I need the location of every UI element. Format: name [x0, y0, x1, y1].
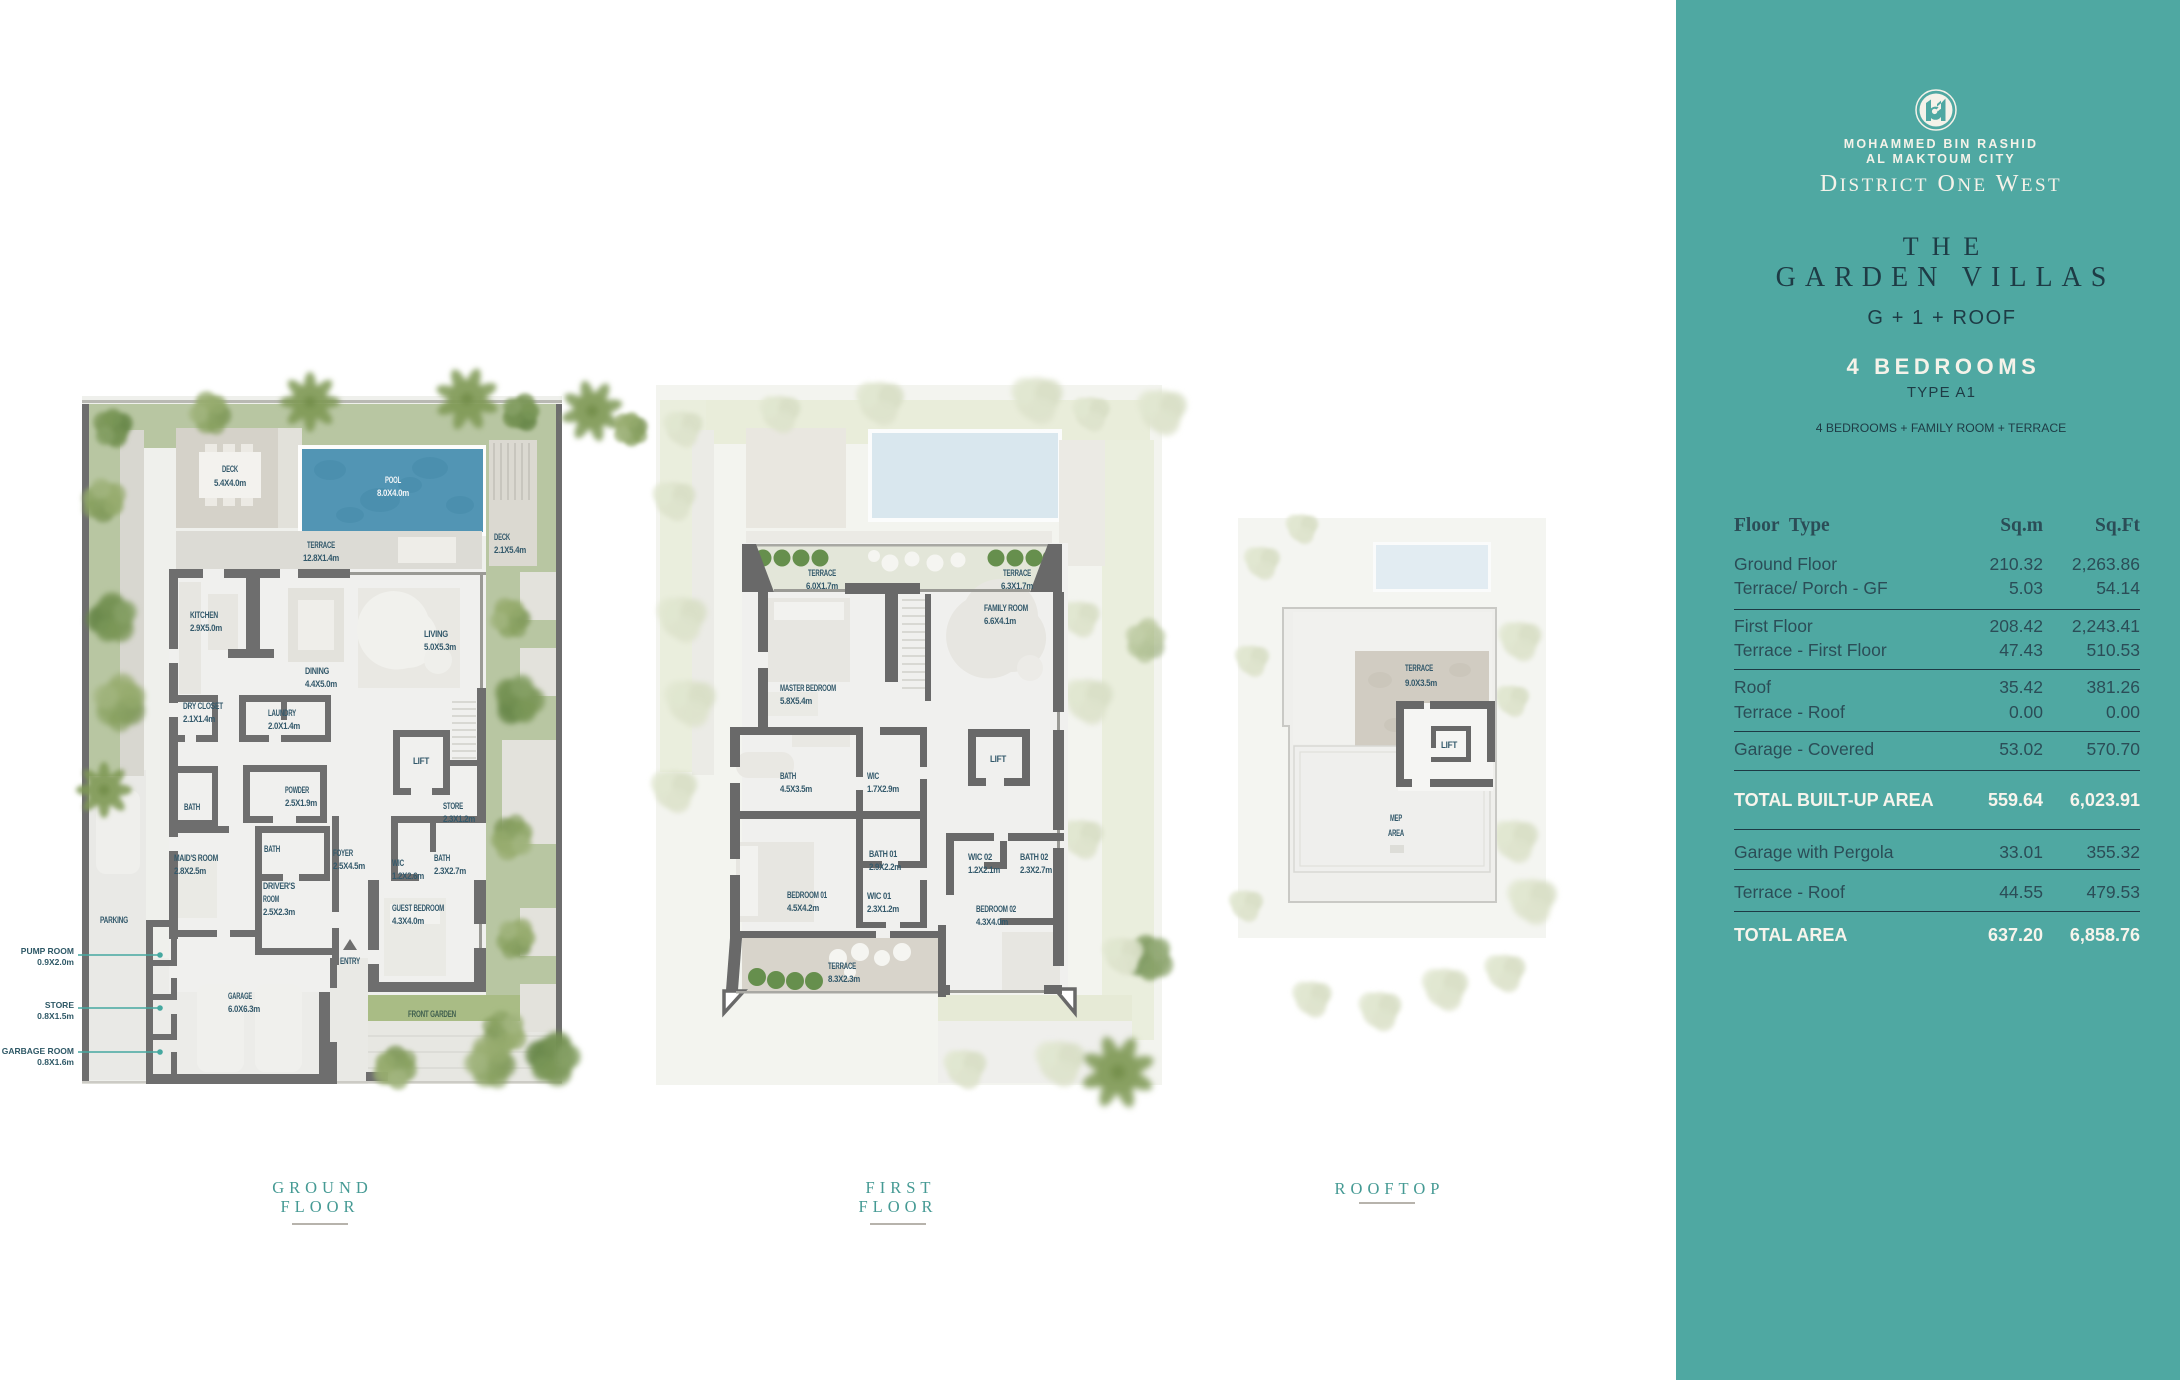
svg-text:ENTRY: ENTRY — [340, 956, 360, 966]
svg-text:6.6X4.1m: 6.6X4.1m — [984, 616, 1016, 626]
svg-text:1.7X2.9m: 1.7X2.9m — [867, 784, 899, 794]
svg-text:2.3X1.2m: 2.3X1.2m — [443, 814, 475, 824]
svg-text:WIC 02: WIC 02 — [968, 852, 992, 862]
svg-text:4.5X4.2m: 4.5X4.2m — [787, 903, 819, 913]
svg-text:6.3X1.7m: 6.3X1.7m — [1001, 581, 1033, 591]
svg-text:STORE: STORE — [443, 801, 463, 811]
svg-text:5.0X5.3m: 5.0X5.3m — [424, 642, 456, 652]
svg-text:2.8X2.5m: 2.8X2.5m — [174, 866, 206, 876]
svg-text:BATH: BATH — [434, 853, 450, 863]
svg-text:6.0X6.3m: 6.0X6.3m — [228, 1004, 260, 1014]
svg-text:BEDROOM 02: BEDROOM 02 — [976, 904, 1016, 914]
svg-text:FOYER: FOYER — [333, 848, 354, 858]
svg-text:BATH: BATH — [264, 844, 280, 854]
svg-text:2.0X1.4m: 2.0X1.4m — [268, 721, 300, 731]
svg-text:LIFT: LIFT — [990, 754, 1007, 764]
svg-text:MEP: MEP — [1390, 813, 1402, 823]
svg-text:1.2X2.1m: 1.2X2.1m — [968, 865, 1000, 875]
svg-text:2.3X2.7m: 2.3X2.7m — [434, 866, 466, 876]
svg-text:ROOM: ROOM — [263, 894, 279, 904]
svg-text:KITCHEN: KITCHEN — [190, 610, 218, 620]
svg-text:AREA: AREA — [1388, 828, 1405, 838]
svg-text:LIFT: LIFT — [1441, 740, 1458, 750]
svg-text:2.3X1.2m: 2.3X1.2m — [867, 904, 899, 914]
svg-text:TERRACE: TERRACE — [808, 568, 836, 578]
svg-text:BATH: BATH — [780, 771, 796, 781]
svg-text:GUEST BEDROOM: GUEST BEDROOM — [392, 903, 444, 913]
svg-text:6.0X1.7m: 6.0X1.7m — [806, 581, 838, 591]
svg-text:4.3X4.0m: 4.3X4.0m — [976, 917, 1008, 927]
svg-text:BEDROOM 01: BEDROOM 01 — [787, 890, 827, 900]
svg-text:FAMILY ROOM: FAMILY ROOM — [984, 603, 1028, 613]
svg-text:2.9X5.0m: 2.9X5.0m — [190, 623, 222, 633]
svg-text:TERRACE: TERRACE — [1405, 663, 1433, 673]
svg-text:LAUNDRY: LAUNDRY — [268, 708, 296, 718]
svg-text:4.4X5.0m: 4.4X5.0m — [305, 679, 337, 689]
svg-text:9.0X3.5m: 9.0X3.5m — [1405, 678, 1437, 688]
svg-text:TERRACE: TERRACE — [1003, 568, 1031, 578]
svg-text:POOL: POOL — [385, 475, 402, 485]
svg-text:WIC 01: WIC 01 — [867, 891, 891, 901]
svg-text:4.3X4.0m: 4.3X4.0m — [392, 916, 424, 926]
svg-text:2.9X2.2m: 2.9X2.2m — [869, 862, 901, 872]
svg-text:DRY CLOSET: DRY CLOSET — [183, 701, 224, 711]
svg-text:4.5X3.5m: 4.5X3.5m — [780, 784, 812, 794]
svg-text:2.3X2.7m: 2.3X2.7m — [1020, 865, 1052, 875]
svg-text:DECK: DECK — [494, 532, 511, 542]
svg-text:LIFT: LIFT — [413, 756, 430, 766]
svg-text:8.3X2.3m: 8.3X2.3m — [828, 974, 860, 984]
svg-text:WIC: WIC — [867, 771, 880, 781]
svg-text:BATH: BATH — [184, 802, 200, 812]
svg-text:WIC: WIC — [392, 858, 405, 868]
svg-text:PARKING: PARKING — [100, 915, 128, 925]
svg-text:5.4X4.0m: 5.4X4.0m — [214, 478, 246, 488]
svg-text:MASTER BEDROOM: MASTER BEDROOM — [780, 683, 836, 693]
svg-text:8.0X4.0m: 8.0X4.0m — [377, 488, 409, 498]
svg-text:5.8X5.4m: 5.8X5.4m — [780, 696, 812, 706]
svg-text:12.8X1.4m: 12.8X1.4m — [303, 553, 339, 563]
svg-text:DRIVER'S: DRIVER'S — [263, 881, 295, 891]
svg-text:1.2X2.6m: 1.2X2.6m — [392, 871, 424, 881]
svg-text:GARAGE: GARAGE — [228, 991, 252, 1001]
svg-text:DINING: DINING — [305, 666, 329, 676]
svg-text:2.1X5.4m: 2.1X5.4m — [494, 545, 526, 555]
svg-text:2.5X4.5m: 2.5X4.5m — [333, 861, 365, 871]
svg-text:2.1X1.4m: 2.1X1.4m — [183, 714, 215, 724]
svg-text:2.5X2.3m: 2.5X2.3m — [263, 907, 295, 917]
svg-text:BATH 02: BATH 02 — [1020, 852, 1048, 862]
svg-text:LIVING: LIVING — [424, 629, 448, 639]
svg-text:FRONT GARDEN: FRONT GARDEN — [408, 1009, 456, 1019]
svg-text:POWDER: POWDER — [285, 785, 309, 795]
svg-text:MAID'S ROOM: MAID'S ROOM — [174, 853, 218, 863]
svg-text:TERRACE: TERRACE — [828, 961, 856, 971]
svg-text:DECK: DECK — [222, 464, 239, 474]
svg-text:2.5X1.9m: 2.5X1.9m — [285, 798, 317, 808]
svg-text:BATH 01: BATH 01 — [869, 849, 897, 859]
svg-text:TERRACE: TERRACE — [307, 540, 335, 550]
